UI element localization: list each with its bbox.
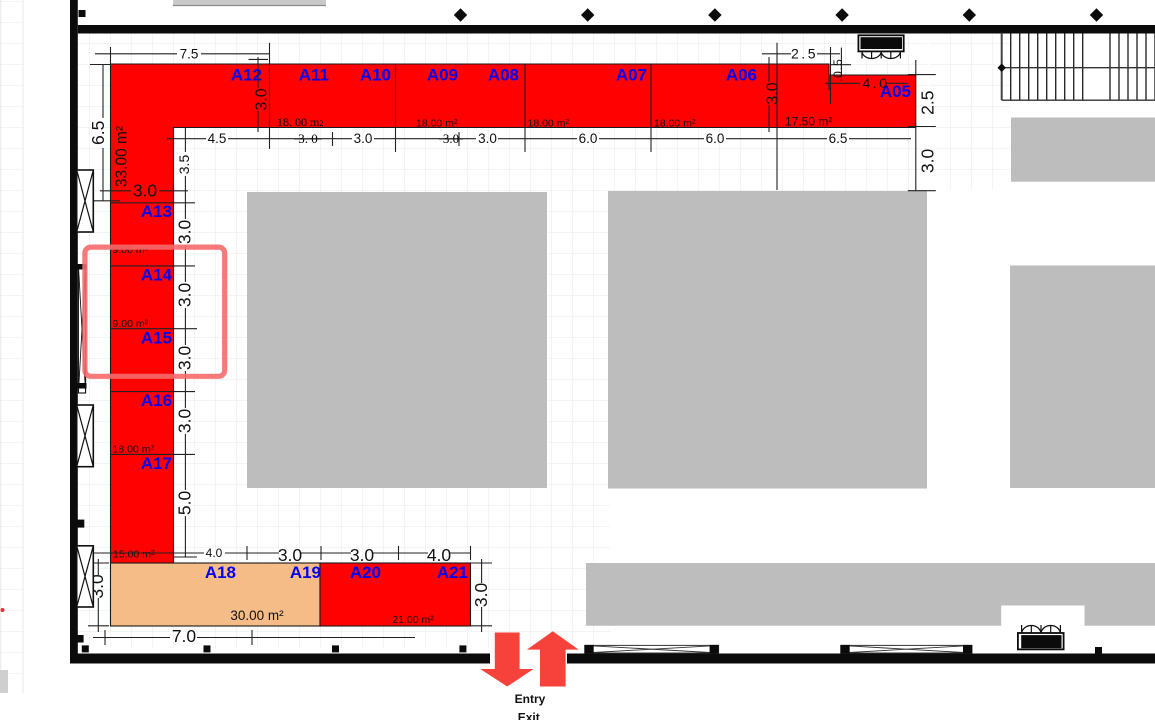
- svg-text:3.0: 3.0: [917, 149, 937, 174]
- svg-text:3.0: 3.0: [133, 180, 158, 200]
- svg-text:3.0: 3.0: [253, 88, 270, 110]
- svg-text:6.5: 6.5: [88, 121, 108, 145]
- svg-text:Entry: Entry: [515, 692, 546, 706]
- svg-text:A16: A16: [141, 391, 172, 410]
- svg-text:3.5: 3.5: [176, 155, 192, 175]
- svg-text:3.0: 3.0: [764, 82, 781, 104]
- svg-text:18.00 m²: 18.00 m²: [113, 444, 155, 456]
- svg-text:A12: A12: [231, 66, 262, 85]
- svg-text:18. 00 m2: 18. 00 m2: [277, 115, 323, 129]
- svg-text:3.0: 3.0: [350, 545, 375, 565]
- svg-text:15.00 m²: 15.00 m²: [113, 549, 155, 561]
- svg-text:3.0: 3.0: [174, 220, 194, 245]
- svg-text:3.0: 3.0: [174, 283, 194, 308]
- svg-text:A17: A17: [141, 454, 172, 473]
- svg-text:4.5: 4.5: [208, 131, 227, 146]
- svg-text:3.0: 3.0: [478, 131, 497, 146]
- svg-text:6.0: 6.0: [579, 131, 598, 146]
- svg-text:A20: A20: [350, 563, 381, 582]
- svg-text:18.00 m²: 18.00 m²: [528, 118, 570, 130]
- svg-text:33.00 m²: 33.00 m²: [114, 126, 131, 187]
- svg-text:18.00 m²: 18.00 m²: [654, 118, 696, 130]
- svg-text:A21: A21: [437, 563, 468, 582]
- svg-text:2.5: 2.5: [917, 91, 937, 115]
- svg-text:A18: A18: [205, 563, 236, 582]
- svg-text:7.0: 7.0: [172, 626, 197, 646]
- svg-text:A11: A11: [299, 66, 329, 85]
- svg-text:30.00 m²: 30.00 m²: [230, 608, 284, 623]
- svg-text:4.0: 4.0: [863, 75, 890, 91]
- svg-text:A15: A15: [141, 329, 172, 348]
- svg-text:A09: A09: [427, 66, 458, 85]
- svg-text:0.5: 0.5: [831, 58, 845, 78]
- svg-text:6.0: 6.0: [706, 131, 725, 146]
- svg-text:3.0: 3.0: [174, 409, 194, 434]
- svg-text:A06: A06: [726, 66, 757, 85]
- svg-text:18.00 m²: 18.00 m²: [416, 118, 458, 130]
- svg-text:3.0: 3.0: [278, 545, 303, 565]
- svg-text:9.00 m²: 9.00 m²: [113, 318, 149, 330]
- svg-text:5.0: 5.0: [174, 491, 194, 516]
- svg-text:A08: A08: [488, 66, 519, 85]
- svg-text:7.5: 7.5: [180, 46, 199, 61]
- svg-text:A14: A14: [141, 266, 173, 285]
- svg-text:3.0: 3.0: [471, 583, 491, 608]
- svg-text:21.00 m²: 21.00 m²: [392, 614, 434, 626]
- svg-text:3.0: 3.0: [174, 346, 194, 371]
- svg-text:6.5: 6.5: [829, 131, 848, 146]
- svg-text:A07: A07: [616, 66, 647, 85]
- svg-text:4.0: 4.0: [427, 545, 452, 565]
- svg-text:17.50 m²: 17.50 m²: [785, 115, 832, 129]
- svg-text:2.5: 2.5: [791, 46, 818, 62]
- svg-text:3.0: 3.0: [354, 131, 373, 146]
- svg-text:A10: A10: [360, 66, 391, 85]
- svg-text:Exit: Exit: [518, 711, 540, 720]
- svg-text:4.0: 4.0: [206, 546, 223, 560]
- svg-text:A19: A19: [290, 563, 321, 582]
- svg-text:A13: A13: [141, 202, 172, 221]
